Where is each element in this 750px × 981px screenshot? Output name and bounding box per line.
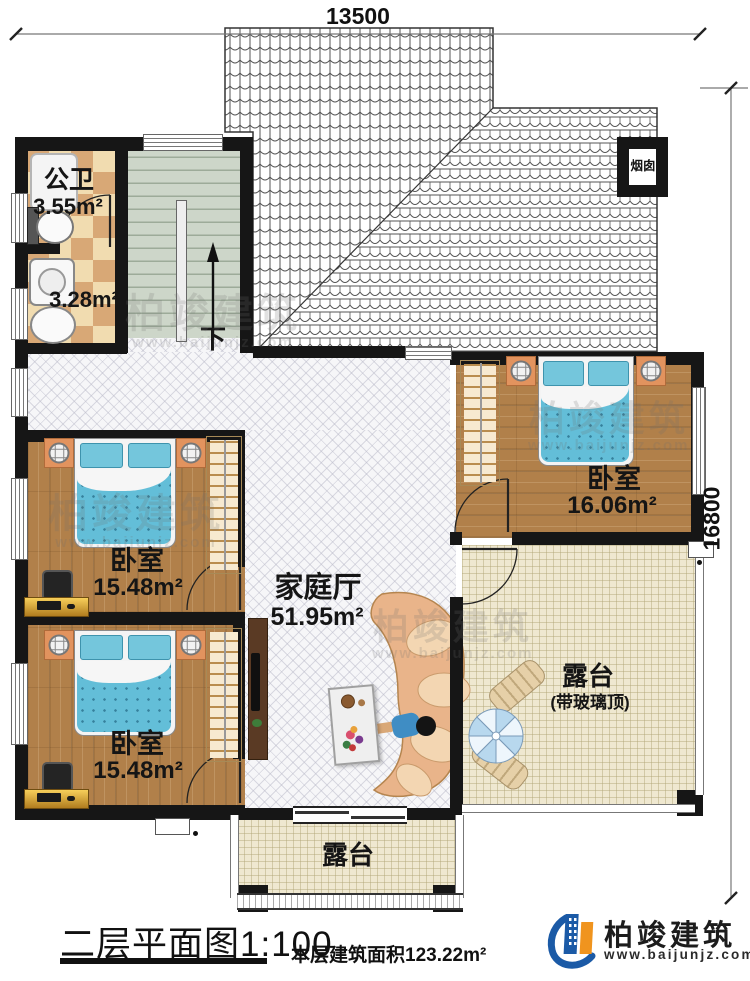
room-area-bedroom-mid: 15.48m² (93, 576, 182, 600)
stair-handrail (176, 200, 187, 342)
bed-mid (74, 438, 176, 548)
floor-plan-canvas: 13500 16800 公卫 3.55m² 3.28m² 卧室 16.06m² … (0, 0, 750, 981)
desk-mid (24, 597, 89, 617)
terrace-bottom-right-railing (455, 815, 464, 898)
room-label-bedroom-right: 卧室 (587, 466, 641, 493)
room-area-public-bath: 3.55m² (33, 196, 103, 218)
wall-bedroom-right-bottom (512, 532, 703, 545)
room-label-family-hall: 家庭厅 (274, 574, 361, 603)
coffee-table (328, 684, 381, 766)
drain-dot-bottom (193, 831, 198, 836)
wardrobe-bottom (206, 628, 242, 762)
window-bath-2 (11, 288, 28, 340)
terrace-bottom-railing (237, 893, 463, 910)
window-bath-1 (11, 193, 28, 243)
window-hall-top (405, 346, 452, 360)
wall-stair-right (240, 137, 253, 353)
wardrobe-mid (206, 436, 242, 574)
room-area-family-hall: 51.95m² (270, 605, 363, 630)
patio-umbrella (466, 706, 526, 766)
bed-bottom (74, 630, 176, 736)
room-label-public-bath: 公卫 (44, 168, 94, 193)
window-hall-left (11, 368, 28, 417)
room-label-bedroom-bottom: 卧室 (110, 731, 164, 758)
brand-logo-icon (546, 908, 600, 970)
room-label-bedroom-mid: 卧室 (110, 548, 164, 575)
wall-main-top (253, 346, 405, 358)
wall-left-main (15, 352, 28, 820)
wall-bedroom-right-bottom-stub (450, 532, 462, 545)
dimension-top: 13500 (326, 3, 390, 30)
terrace-right-bottom-railing (462, 804, 695, 813)
chimney-label: 烟囱 (630, 160, 655, 173)
window-stairwell (143, 134, 223, 151)
floor-area-note: 本层建筑面积123.22m² (291, 940, 486, 967)
window-bedroom-right (692, 387, 706, 495)
wall-hall-terrace (450, 597, 463, 809)
wall-bottom-mid2 (407, 808, 462, 820)
nightstand (176, 438, 206, 468)
stair-down-label: 下 (200, 326, 226, 352)
nightstand (44, 630, 74, 660)
tv-cabinet (248, 618, 268, 760)
wall-bath-bottom (28, 343, 127, 354)
room-label-terrace-right: 露台 (562, 663, 614, 689)
plan-title-underline (60, 958, 267, 964)
nightstand (176, 630, 206, 660)
roof (225, 28, 657, 352)
brand-website: www.baijunjz.com (604, 947, 750, 962)
wardrobe-right (460, 360, 500, 486)
desk-bottom (24, 789, 89, 809)
drain-box-bottom (155, 818, 190, 835)
wall-bottom-mid1 (245, 808, 293, 820)
room-note-terrace-right: (带玻璃顶) (550, 694, 629, 711)
terrace-bottom-left-railing (230, 815, 239, 898)
room-area-bedroom-right: 16.06m² (567, 494, 656, 518)
room-label-terrace-bottom: 露台 (322, 842, 374, 868)
nightstand (636, 356, 666, 386)
terrace-right-railing (695, 545, 704, 795)
window-bedroom-bottom (11, 663, 28, 745)
room-area-bedroom-bottom: 15.48m² (93, 759, 182, 783)
dimension-right: 16800 (699, 487, 726, 551)
sliding-door (293, 806, 407, 824)
window-bedroom-mid (11, 478, 28, 560)
room-area-laundry: 3.28m² (49, 289, 119, 311)
nightstand (506, 356, 536, 386)
wall-bath-right (115, 137, 128, 353)
bed-right (538, 356, 634, 466)
drain-dot-right (697, 560, 702, 565)
nightstand (44, 438, 74, 468)
